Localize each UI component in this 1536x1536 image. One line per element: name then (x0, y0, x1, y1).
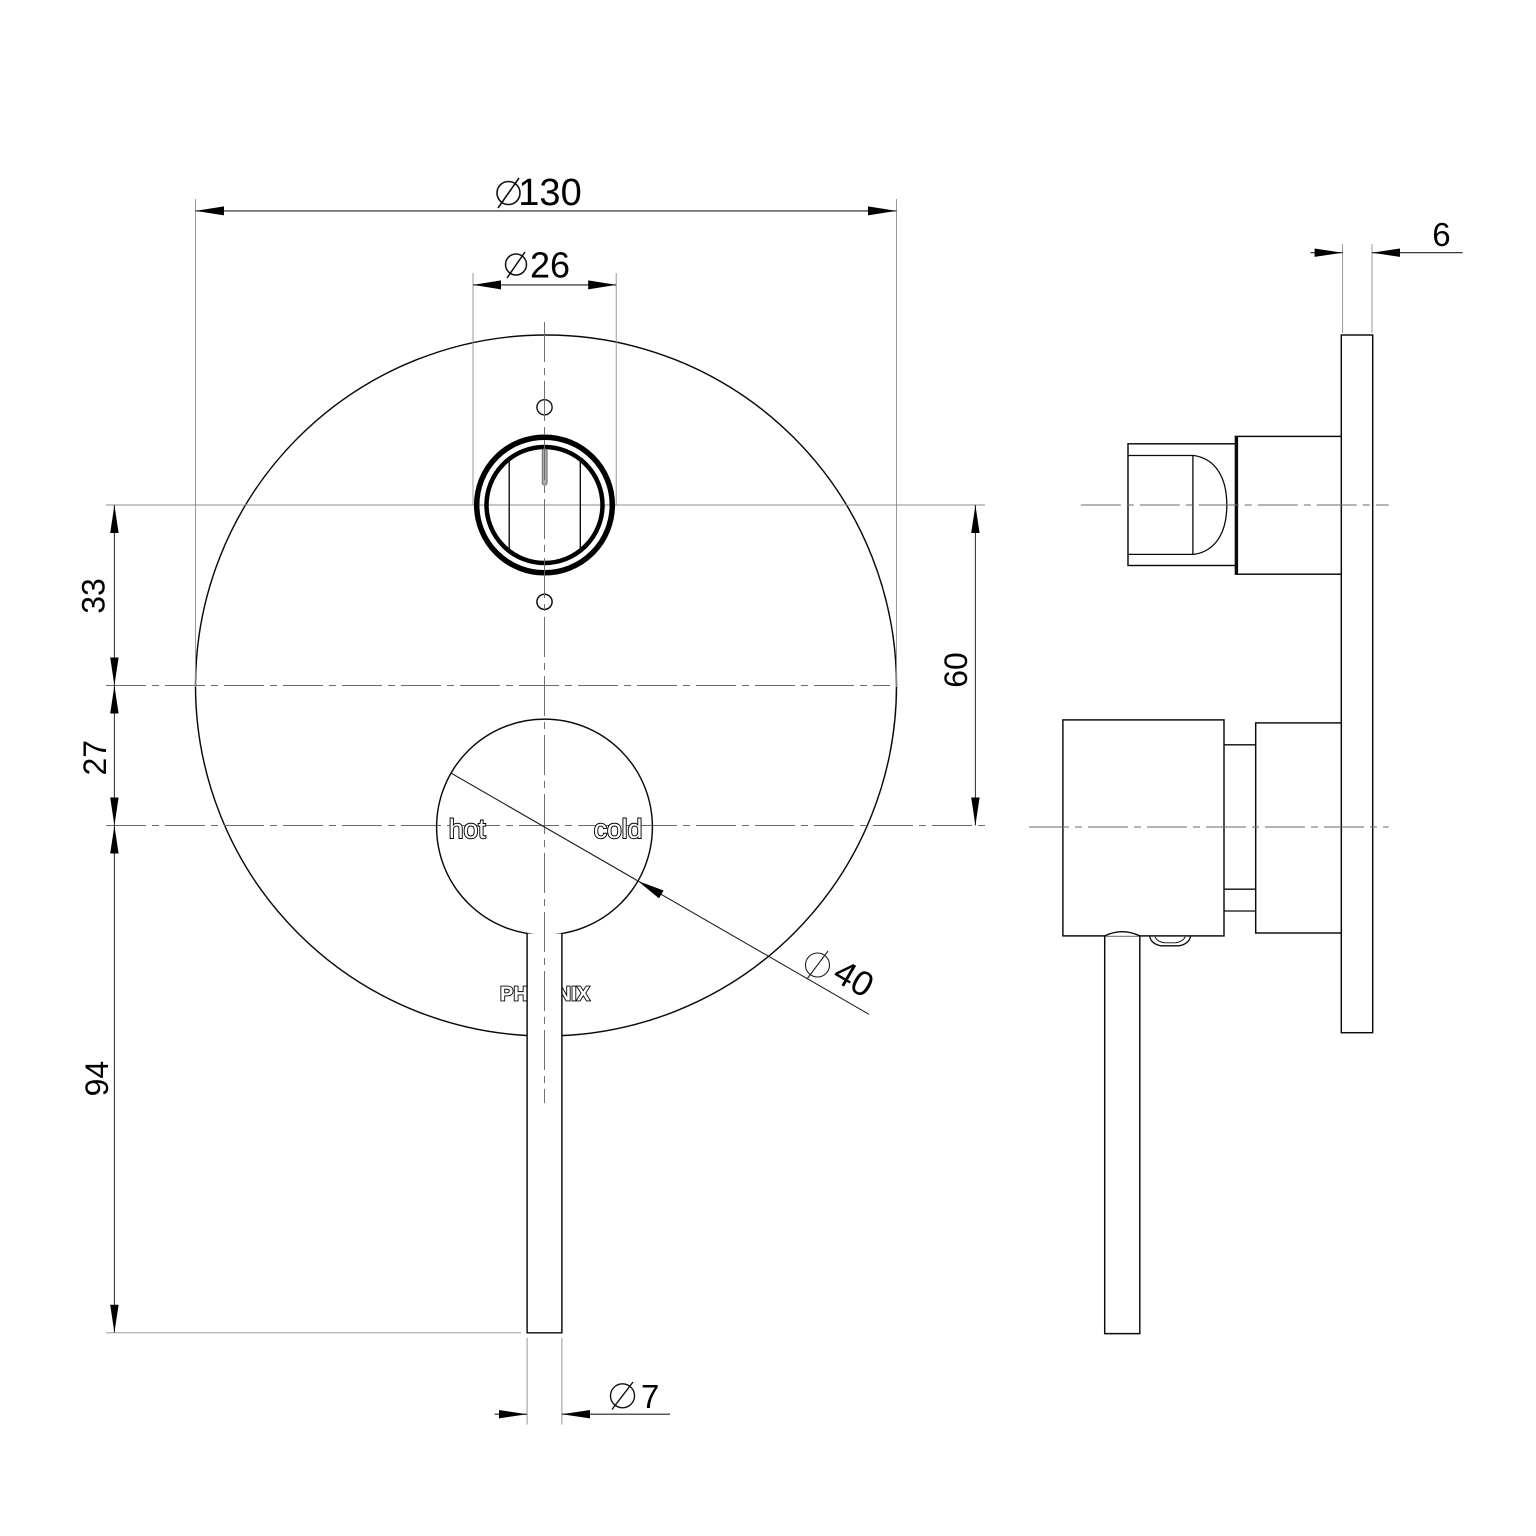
svg-text:27: 27 (77, 740, 113, 776)
svg-text:33: 33 (75, 578, 111, 614)
svg-text:7: 7 (641, 1378, 659, 1415)
svg-text:26: 26 (530, 245, 570, 286)
svg-text:60: 60 (938, 652, 974, 688)
svg-text:130: 130 (518, 172, 581, 214)
svg-text:6: 6 (1432, 216, 1450, 253)
svg-text:cold: cold (594, 814, 643, 844)
svg-text:hot: hot (449, 814, 486, 844)
svg-text:94: 94 (79, 1061, 115, 1097)
